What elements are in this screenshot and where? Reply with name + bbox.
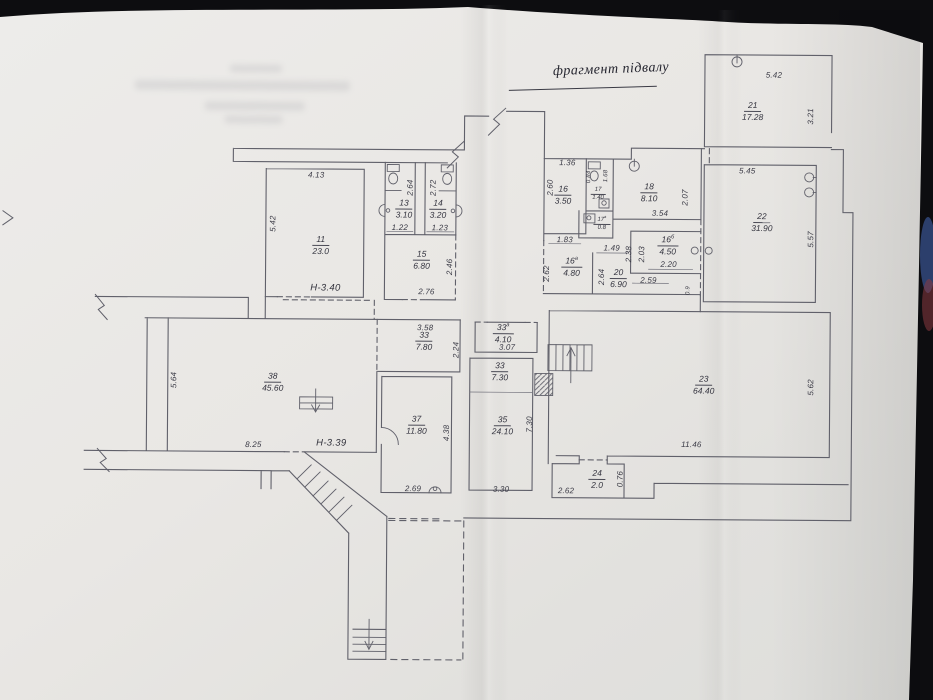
paper-sheet (0, 5, 923, 700)
floorplan-photo: фрагмент підвалу 1123.0 133.10 143.20 15… (0, 0, 933, 700)
floorplan-drawing (0, 0, 933, 700)
hatch-shaft (535, 373, 553, 395)
